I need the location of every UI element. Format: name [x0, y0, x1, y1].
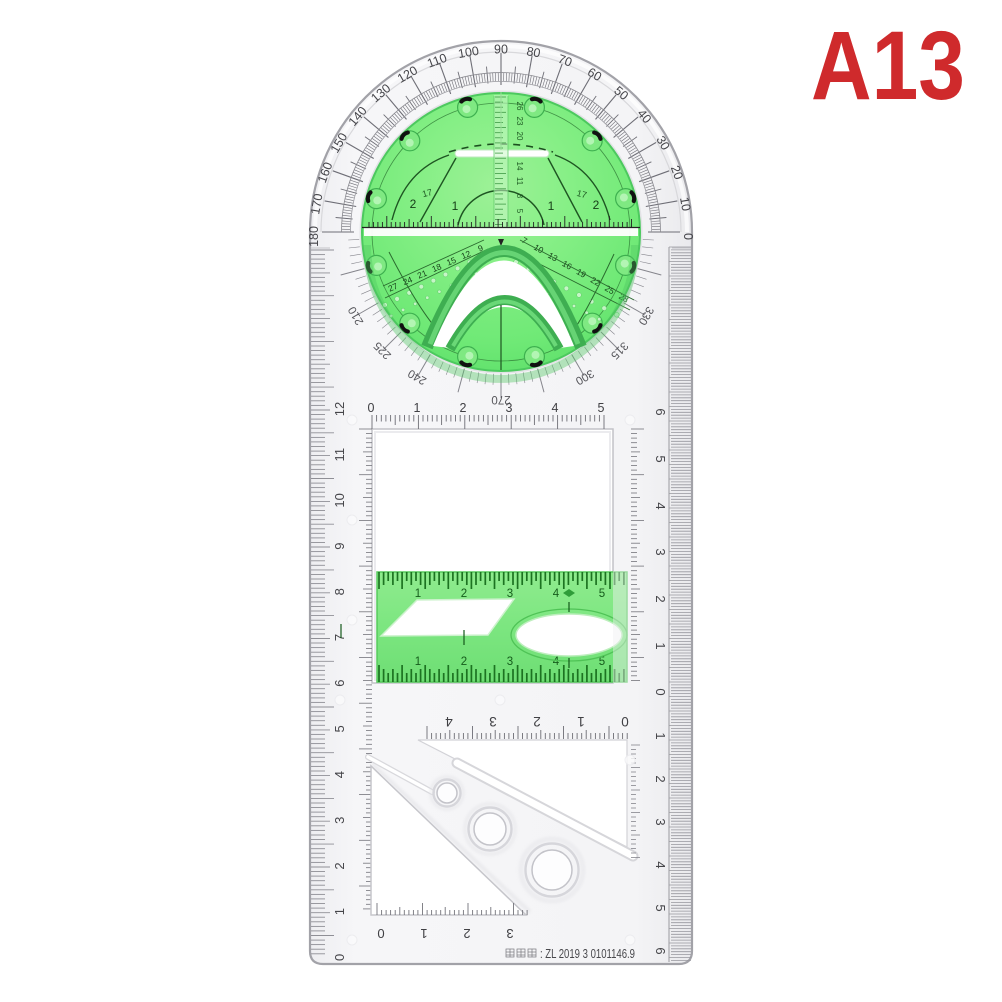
svg-text:0: 0: [332, 954, 347, 961]
svg-text:0: 0: [377, 926, 384, 941]
svg-text:9: 9: [332, 542, 347, 549]
svg-text:12: 12: [332, 402, 347, 416]
svg-text:2: 2: [593, 198, 600, 212]
svg-text:5: 5: [653, 904, 668, 911]
svg-text:26: 26: [515, 102, 524, 111]
svg-text:1: 1: [414, 401, 421, 415]
svg-text:3: 3: [489, 714, 497, 729]
svg-text:0: 0: [368, 401, 375, 415]
svg-text:4: 4: [653, 861, 668, 868]
svg-text:0: 0: [681, 233, 695, 240]
svg-text:3: 3: [332, 817, 347, 824]
svg-text:2: 2: [410, 197, 417, 211]
svg-text:80: 80: [525, 44, 541, 60]
svg-text:2: 2: [460, 401, 467, 415]
svg-text:6: 6: [653, 947, 668, 954]
svg-text:4: 4: [553, 656, 560, 668]
svg-text:3: 3: [507, 656, 513, 668]
svg-text:5: 5: [515, 209, 524, 214]
svg-text:0: 0: [653, 688, 668, 695]
svg-text:2: 2: [332, 862, 347, 869]
svg-text:1: 1: [415, 656, 421, 668]
svg-text:6: 6: [332, 680, 347, 687]
svg-text:2: 2: [461, 656, 467, 668]
svg-text:2: 2: [461, 588, 467, 600]
svg-text:1: 1: [548, 199, 555, 213]
svg-text:10: 10: [332, 493, 347, 507]
svg-text:5: 5: [599, 656, 605, 668]
svg-text:4: 4: [332, 771, 347, 778]
svg-text:4: 4: [553, 588, 560, 600]
svg-text:11: 11: [332, 448, 347, 462]
svg-text:1: 1: [415, 588, 421, 600]
svg-text:A13: A13: [811, 11, 965, 120]
svg-text:5: 5: [653, 455, 668, 462]
svg-text:23: 23: [515, 117, 524, 126]
svg-text:8: 8: [515, 194, 524, 199]
svg-text:1: 1: [332, 908, 347, 915]
svg-text:3: 3: [653, 548, 668, 555]
svg-text:2: 2: [533, 714, 541, 729]
svg-text:180: 180: [307, 226, 321, 247]
svg-text:1: 1: [653, 642, 668, 649]
svg-text:1: 1: [577, 714, 585, 729]
svg-text:1: 1: [452, 199, 459, 213]
svg-text:11: 11: [515, 177, 524, 186]
svg-text:4: 4: [445, 714, 453, 729]
svg-text:14: 14: [515, 162, 524, 171]
svg-text:20: 20: [515, 132, 524, 141]
svg-text:: ZL 2019 3 0101146.9: : ZL 2019 3 0101146.9: [540, 947, 635, 961]
svg-text:3: 3: [506, 926, 513, 941]
svg-text:3: 3: [507, 588, 513, 600]
svg-text:2: 2: [463, 926, 470, 941]
svg-text:1: 1: [653, 732, 668, 739]
svg-text:4: 4: [653, 502, 668, 509]
svg-text:3: 3: [506, 401, 513, 415]
svg-text:10: 10: [677, 196, 693, 212]
svg-text:6: 6: [653, 408, 668, 415]
svg-text:5: 5: [599, 588, 605, 600]
svg-text:1: 1: [420, 926, 427, 941]
svg-text:7: 7: [332, 634, 347, 641]
svg-text:2: 2: [653, 775, 668, 782]
svg-text:5: 5: [332, 725, 347, 732]
svg-text:8: 8: [332, 588, 347, 595]
svg-text:3: 3: [653, 818, 668, 825]
svg-text:2: 2: [653, 595, 668, 602]
svg-text:0: 0: [621, 714, 629, 729]
svg-text:5: 5: [598, 401, 605, 415]
svg-text:90: 90: [494, 43, 508, 57]
svg-text:4: 4: [552, 401, 559, 415]
